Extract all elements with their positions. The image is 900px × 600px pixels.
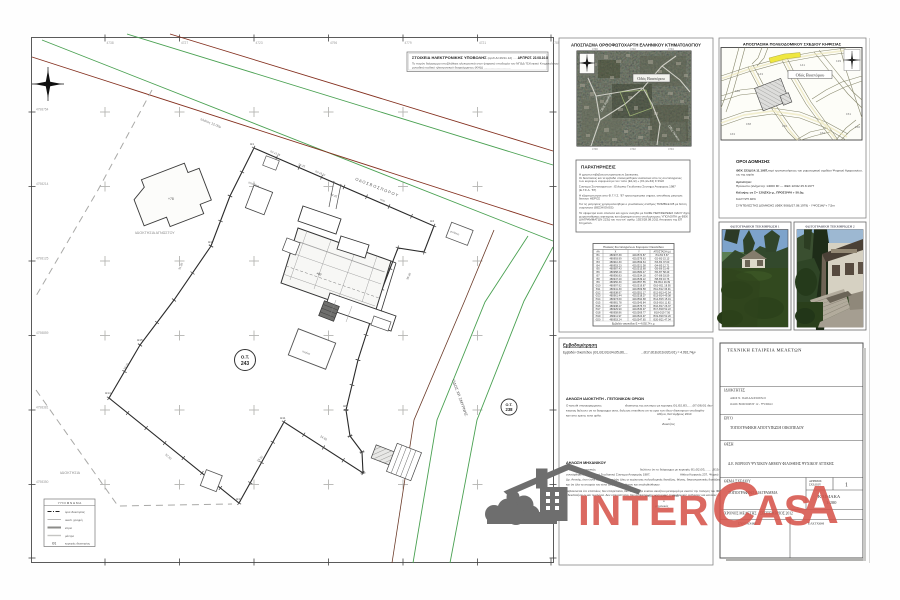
svg-text:480953.24: 480953.24: [609, 317, 622, 321]
svg-text:Θ20-Θ21 47.04: Θ20-Θ21 47.04: [653, 317, 671, 321]
svg-text:Θ17: Θ17: [208, 240, 214, 244]
svg-text:+78: +78: [168, 197, 174, 201]
svg-text:143: 143: [758, 72, 763, 76]
svg-text:ιδιοκτητης της ανωτερω με κορυ: ιδιοκτητης της ανωτερω με κορυφες Θ1,Θ2,…: [625, 404, 713, 408]
svg-text:ΠΑΡΑΤΗΡΗΣΕΙΣ: ΠΑΡΑΤΗΡΗΣΕΙΣ: [581, 165, 616, 170]
svg-text:150: 150: [855, 125, 860, 129]
svg-text:4790: 4790: [592, 147, 598, 151]
svg-text:Εμβαδομέτρηση: Εμβαδομέτρηση: [563, 343, 597, 348]
svg-text:Θ8: Θ8: [343, 404, 347, 408]
svg-text:Δρ. Αττικής, έτσι ώστε λήφθηκα: Δρ. Αττικής, έτσι ώστε λήφθηκαν υπόψη όλ…: [566, 478, 721, 482]
svg-text:Αθήνα, Σεπτέμβριος 2010: Αθήνα, Σεπτέμβριος 2010: [657, 412, 692, 416]
svg-text:4798754: 4798754: [36, 108, 49, 112]
svg-text:κτίρια: κτίρια: [65, 526, 72, 530]
svg-text:C: C: [711, 469, 758, 541]
svg-text:4798381: 4798381: [36, 406, 49, 410]
svg-text:μοναδικό κωδικό ηλεκτρονικού δ: μοναδικό κωδικό ηλεκτρονικού διαγράμματο…: [412, 66, 511, 70]
svg-text:1: 1: [845, 483, 848, 489]
svg-text:καν απο εμενα, ειναι ορθα.: καν απο εμενα, ειναι ορθα.: [566, 414, 602, 418]
svg-text:ΑΦΟΙ Ν. ΠΑΠΑΔΟΠΟΥΛΟΙ: ΑΦΟΙ Ν. ΠΑΠΑΔΟΠΟΥΛΟΙ: [730, 396, 766, 400]
svg-text:κορυφές ιδιοκτησίας: κορυφές ιδιοκτησίας: [65, 542, 91, 546]
svg-text:4779: 4779: [405, 41, 412, 45]
svg-text:4792: 4792: [630, 147, 636, 151]
svg-text:Θ11: Θ11: [280, 416, 286, 420]
svg-text:ΑΠΟΣΠΑΣΜΑ ΠΟΛΕΟΔΟΜΙΚΟΥ ΣΧΕΔΙ: ΑΠΟΣΠΑΣΜΑ ΠΟΛΕΟΔΟΜΙΚΟΥ ΣΧΕΔΙΟΥ ΚΗΦΙΣΙΑΣ: [743, 42, 842, 47]
svg-text:4794: 4794: [668, 47, 674, 51]
svg-text:Κτηματολ.: Κτηματολ.: [579, 221, 593, 225]
svg-text:ΤΕΧΝΙΚΗ ΕΤΑΙΡΕΙΑ ΜΕΛΕΤΩΝ: ΤΕΧΝΙΚΗ ΕΤΑΙΡΕΙΑ ΜΕΛΕΤΩΝ: [727, 348, 802, 353]
svg-text:Κάλυψη: σε Σ= 120(ΣΚ)+μ.,: Κάλυψη: σε Σ= 120(ΣΚ)+μ., ΠΡΟΣΟΨΗ + 50.0…: [736, 191, 804, 195]
svg-text:238: 238: [506, 407, 514, 412]
svg-text:162: 162: [820, 131, 825, 135]
svg-text:δικτυου ΗΕΡΟΣ: δικτυου ΗΕΡΟΣ: [579, 197, 600, 201]
svg-text:4721: 4721: [479, 41, 486, 45]
svg-text:ΟΔΟΣ ΒΟΣΠΟΡΟΥ 12 - ΨΥΧΙΚΟ: ΟΔΟΣ ΒΟΣΠΟΡΟΥ 12 - ΨΥΧΙΚΟ: [730, 402, 773, 406]
svg-text:Δ.Ε. ΒΟΡΕΙΟΥ ΨΥΧΙΚΟΥ-ΔΗΜΟΥ ΦΙΛ: Δ.Ε. ΒΟΡΕΙΟΥ ΨΥΧΙΚΟΥ-ΔΗΜΟΥ ΦΙΛΟΘΕΗΣ ΨΥΧΙ…: [728, 462, 834, 466]
svg-text:οικοδ. γραμμή: οικοδ. γραμμή: [65, 518, 83, 522]
svg-text:Εμβαδόν οικοπέδου Ε = 4.092,74: Εμβαδόν οικοπέδου Ε = 4.092,74 τ.μ.: [612, 322, 656, 326]
svg-text:(Ε.Γ.Σ.Α. '87): (Ε.Γ.Σ.Α. '87): [579, 188, 596, 192]
svg-text:ΟΡΟΙ ΔΟΜΗΣΗΣ: ΟΡΟΙ ΔΟΜΗΣΗΣ: [736, 159, 770, 164]
svg-text:ΔΗΛΩΣΗ ΜΗΧΑΝΙΚΟΥ: ΔΗΛΩΣΗ ΜΗΧΑΝΙΚΟΥ: [566, 461, 607, 465]
svg-text:A: A: [800, 475, 839, 535]
svg-text:Πρόσωπο (ελάχιστο): 14000 Μ² —: Πρόσωπο (ελάχιστο): 14000 Μ² — ΦΕΚ 223Δ/…: [736, 184, 815, 188]
svg-text:ΘΕΣΗ: ΘΕΣΗ: [724, 443, 734, 447]
svg-text:ΕΡΓΟ: ΕΡΓΟ: [724, 417, 733, 421]
svg-text:ΚΑΛΥΨΗ 40%: ΚΑΛΥΨΗ 40%: [736, 197, 756, 201]
svg-text:Οδός Βοσπόρου: Οδός Βοσπόρου: [637, 76, 664, 81]
svg-text:Θ15: Θ15: [137, 338, 143, 342]
svg-text:243: 243: [241, 361, 250, 367]
svg-text:Θ4: Θ4: [430, 219, 434, 223]
svg-text:ΣΥΝΤΕΛΕΣΤΗΣ ΔΟΜΗΣΗΣ (ΦΕΚ 908Δ: ΣΥΝΤΕΛΕΣΤΗΣ ΔΟΜΗΣΗΣ (ΦΕΚ 908Δ/27.08.1979…: [736, 204, 835, 208]
svg-text:158: 158: [746, 122, 751, 126]
svg-text:156: 156: [735, 89, 740, 93]
svg-text:4796: 4796: [330, 41, 337, 45]
svg-text:ΙΔΙΟΚΤΗΣΙΑ ΑΓΝΩΣΤΟΥ: ΙΔΙΟΚΤΗΣΙΑ ΑΓΝΩΣΤΟΥ: [135, 231, 175, 235]
svg-text:Θ1: Θ1: [250, 142, 254, 146]
svg-text:περί τροποποιήσεως του ρυμοτομ: περί τροποποιήσεως του ρυμοτομικού σχεδί…: [768, 169, 863, 173]
svg-text:ΑΠΟΣΠΑΣΜΑ ΟΡΘΟΦΩΤΟΧΑΡΤΗ ΕΛΛΗ: ΑΠΟΣΠΑΣΜΑ ΟΡΘΟΦΩΤΟΧΑΡΤΗ ΕΛΛΗΝΙΚΟΥ ΚΤΗΜΑΤ…: [571, 43, 701, 48]
svg-text:ΙΔΙΟΚΤΗΣΙΑ: ΙΔΙΟΚΤΗΣΙΑ: [60, 471, 81, 475]
svg-text:ΤΟΠΟΓΡΑΦΙΚΗ ΑΠΟΤΥΠΩΣΗ ΟΙΚΟΠΕ: ΤΟΠΟΓΡΑΦΙΚΗ ΑΠΟΤΥΠΩΣΗ ΟΙΚΟΠΕΔΟΥ: [730, 426, 804, 430]
svg-text:4790: 4790: [592, 47, 598, 51]
svg-text:4798125: 4798125: [36, 257, 49, 261]
svg-text:4210547.65: 4210547.65: [632, 317, 646, 321]
svg-text:...Θ17,Θ18,Θ19,Θ20,Θ1) = 4.: ...Θ17,Θ18,Θ19,Θ20,Θ1) = 4.092,74μ²: [641, 351, 696, 355]
svg-text:4798350: 4798350: [36, 480, 49, 484]
svg-text:των κορυφων συμφωνα με τον τυπ: των κορυφων συμφωνα με τον τυπο (Ε1,Θ) +…: [579, 179, 664, 183]
svg-text:141: 141: [800, 63, 805, 67]
svg-text:O.T.: O.T.: [241, 355, 249, 360]
svg-text:4738: 4738: [107, 41, 114, 45]
svg-text:ιδιοκτήτες: ιδιοκτήτες: [662, 422, 676, 426]
svg-text:4798859: 4798859: [36, 331, 49, 335]
svg-text:μάντρα: μάντρα: [65, 534, 74, 538]
svg-text:4794: 4794: [668, 147, 674, 151]
svg-text:ΦΩΤΟΓΡΑΦΙΚΗ ΤΕΚΜΗΡΙΩΣΗ 1: ΦΩΤΟΓΡΑΦΙΚΗ ΤΕΚΜΗΡΙΩΣΗ 1: [730, 225, 779, 229]
svg-text:Υ Π Ο Μ Ν Η Μ Α: Υ Π Ο Μ Ν Η Μ Α: [58, 501, 81, 505]
svg-text:4798214: 4798214: [36, 182, 49, 186]
svg-text:Εμβαδόν Οικοπέδου (Θ1,Θ2,Θ3,Θ: Εμβαδόν Οικοπέδου (Θ1,Θ2,Θ3,Θ4,Θ5,Θ6,...: [563, 351, 628, 355]
svg-text:ΣΤΟΙΧΕΙΑ ΗΛΕΚΤΡΟΝΙΚΗΣ ΥΠΟΒΟΛΗΣ: ΣΤΟΙΧΕΙΑ ΗΛΕΚΤΡΟΝΙΚΗΣ ΥΠΟΒΟΛΗΣ (αριθ.Δ=4…: [412, 55, 548, 60]
svg-text:163: 163: [730, 132, 735, 136]
svg-text:4792: 4792: [630, 47, 636, 51]
svg-text:151: 151: [846, 112, 851, 116]
svg-text:ως της ισχύει: ως της ισχύει: [736, 173, 754, 177]
svg-text:Ο κατωθι υπογεγραμμενος: Ο κατωθι υπογεγραμμενος: [566, 404, 602, 408]
svg-text:Οδός Βοσπόρου: Οδός Βοσπόρου: [796, 73, 825, 78]
svg-text:Θ1: Θ1: [52, 542, 56, 546]
svg-text:INTER: INTER: [578, 488, 710, 535]
svg-text:ΦΩΤΟΓΡΑΦΙΚΗ ΤΕΚΜΗΡΙΩΣΗ 2: ΦΩΤΟΓΡΑΦΙΚΗ ΤΕΚΜΗΡΙΩΣΗ 2: [805, 225, 854, 229]
svg-text:Θ20: Θ20: [596, 317, 601, 321]
svg-text:όρια ιδιοκτησίας: όρια ιδιοκτησίας: [65, 510, 86, 514]
svg-text:Πίνακας Συντεταγμένων Κορυφώ: Πίνακας Συντεταγμένων Κορυφών Οικοπέδου: [603, 245, 664, 249]
svg-text:160: 160: [782, 124, 787, 128]
svg-text:ΔΙΑΓΡΑΜΜΑΤΩΝ 223Δ του που επ': ΔΙΑΓΡΑΜΜΑΤΩΝ 223Δ του που επ' αριθμ. 155…: [579, 218, 682, 222]
svg-text:4727: 4727: [181, 41, 188, 45]
svg-text:συχνοτητα (ΘΕΣΗ/GNSS): συχνοτητα (ΘΕΣΗ/GNSS): [579, 206, 613, 210]
svg-text:139: 139: [836, 59, 841, 63]
svg-text:4723: 4723: [256, 41, 263, 45]
svg-text:Θ12: Θ12: [236, 497, 242, 501]
svg-text:ΔΗΛΩΣΗ ΙΔΙΟΚΤΗΤΗ - ΓΕΙΤΟΝΙΚΩΝ: ΔΗΛΩΣΗ ΙΔΙΟΚΤΗΤΗ - ΓΕΙΤΟΝΙΚΩΝ ΟΡΙΩΝ: [566, 397, 644, 401]
svg-text:Θ14: Θ14: [105, 391, 111, 395]
svg-text:ΙΔΙΟΚΤΗΤΕΣ: ΙΔΙΟΚΤΗΤΕΣ: [724, 389, 745, 393]
svg-text:οι: οι: [668, 417, 671, 421]
